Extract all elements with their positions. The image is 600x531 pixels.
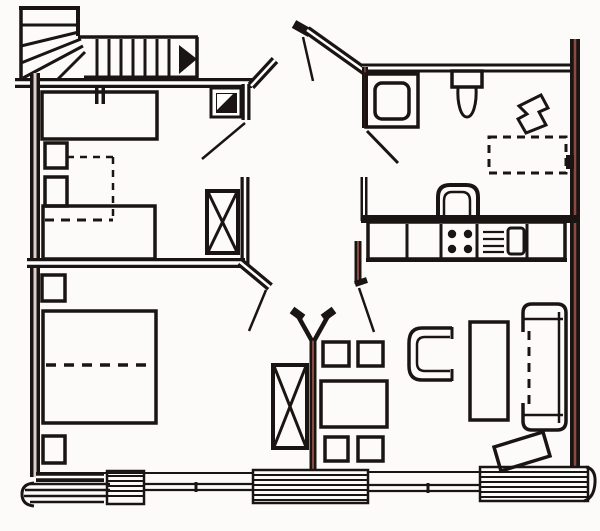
bedroom1-nightstand-b (45, 177, 67, 206)
wall-mark-right (566, 155, 574, 169)
wall-bedroom2-door-angled (240, 262, 270, 287)
stove-burner-3 (448, 245, 456, 253)
dining-chair-2 (358, 342, 383, 366)
bedroom2-door-leaf (249, 290, 266, 331)
armchair-inner (417, 337, 450, 371)
toilet-tank (452, 71, 482, 87)
wall-entry-diagonal (307, 30, 366, 72)
bedroom1-nightstand-a (45, 143, 67, 168)
dining-chair-3 (325, 437, 348, 461)
side-table-tilted (494, 432, 550, 471)
coffee-table (470, 322, 508, 420)
toilet-bowl (458, 87, 476, 117)
wall-entry-angled-left (251, 60, 275, 86)
dining-chair-1 (323, 342, 349, 366)
sink-basin (508, 228, 524, 254)
bedroom2-nightstand-top (42, 275, 65, 301)
stove-burner-4 (464, 245, 472, 253)
living-door-jamb-cap (355, 280, 367, 284)
shower-basin (375, 83, 409, 119)
stove-burner-2 (464, 230, 472, 238)
living-door-leaf (359, 288, 374, 332)
dining-table (321, 381, 387, 427)
bathroom-door-leaf (367, 131, 398, 163)
stairs-direction-arrow (179, 45, 197, 74)
hall-door-cap-right (323, 310, 334, 318)
bedroom1-door-leaf (202, 123, 245, 159)
stove-burner-1 (448, 230, 456, 238)
stairs-winder-4 (56, 52, 85, 81)
dining-chair-4 (358, 437, 383, 461)
entry-door-leaf (303, 37, 313, 81)
washbasin-tilted (518, 95, 548, 133)
bedroom1-bed-bottom (43, 206, 155, 259)
floor-plan-drawing (0, 0, 600, 531)
bedroom2-double-bed (43, 311, 156, 423)
bedroom2-nightstand-bottom (43, 436, 65, 463)
kitchen-counter (368, 222, 565, 259)
boiler-inner (444, 192, 470, 215)
hall-door-cap-left (292, 310, 303, 318)
washing-machine-dashed (489, 137, 566, 173)
floor-plan-page (0, 0, 600, 531)
